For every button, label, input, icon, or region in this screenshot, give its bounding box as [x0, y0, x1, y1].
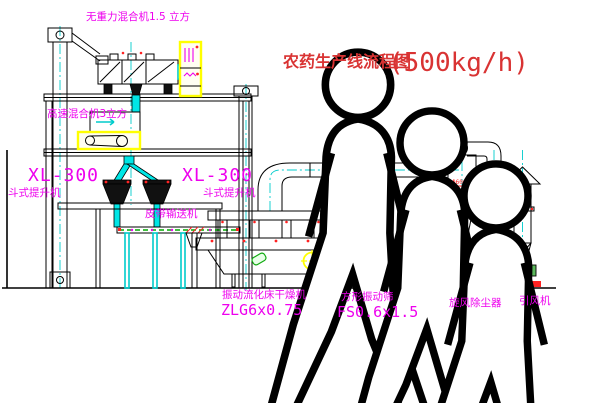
belt-conveyor [117, 227, 240, 288]
label-top-mixer: 无重力混合机1.5 立方 [86, 10, 190, 23]
label-belt-conveyor: 皮带输送机 [145, 207, 198, 220]
label-cyclone: 旋风除尘器 [449, 296, 502, 309]
cad-flow-diagram: 1500 345 Φ600 [0, 0, 600, 403]
label-fan: 引风机 [519, 294, 551, 307]
label-mid-elevator: 斗式提升机 [203, 186, 256, 199]
gravity-free-mixer [96, 52, 190, 112]
label-mid-elevator-model: XL-300 [182, 165, 253, 186]
label-screen-name: 方形振动筛 [341, 290, 394, 303]
y-chute [113, 156, 161, 182]
label-dryer-model: ZLG6x0.75 [221, 301, 302, 319]
label-left-elevator-model: XL-300 [28, 165, 99, 186]
sample-cylinder-icon [251, 252, 267, 266]
label-second-mixer: 高速混合机3立方 [47, 107, 127, 120]
label-dryer-name: 振动流化床干燥机 [222, 288, 306, 301]
drawing-title: 农药生产线流程图 (500kg/h) [282, 48, 529, 78]
label-screen-model: FS0.6x1.5 [337, 303, 418, 321]
bucket-elevator-left [48, 28, 100, 288]
control-cabinet-top [180, 42, 201, 96]
title-capacity: (500kg/h) [388, 48, 529, 78]
label-left-elevator: 斗式提升机 [8, 186, 61, 199]
